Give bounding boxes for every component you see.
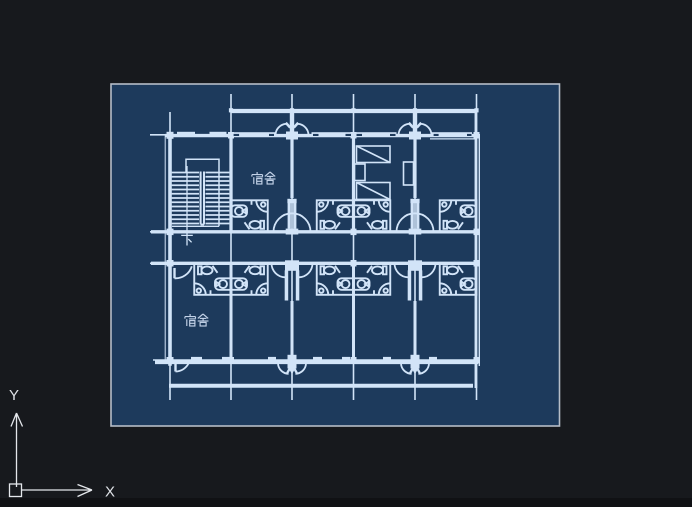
svg-text:X: X [105, 484, 115, 501]
svg-text:Y: Y [9, 387, 19, 404]
